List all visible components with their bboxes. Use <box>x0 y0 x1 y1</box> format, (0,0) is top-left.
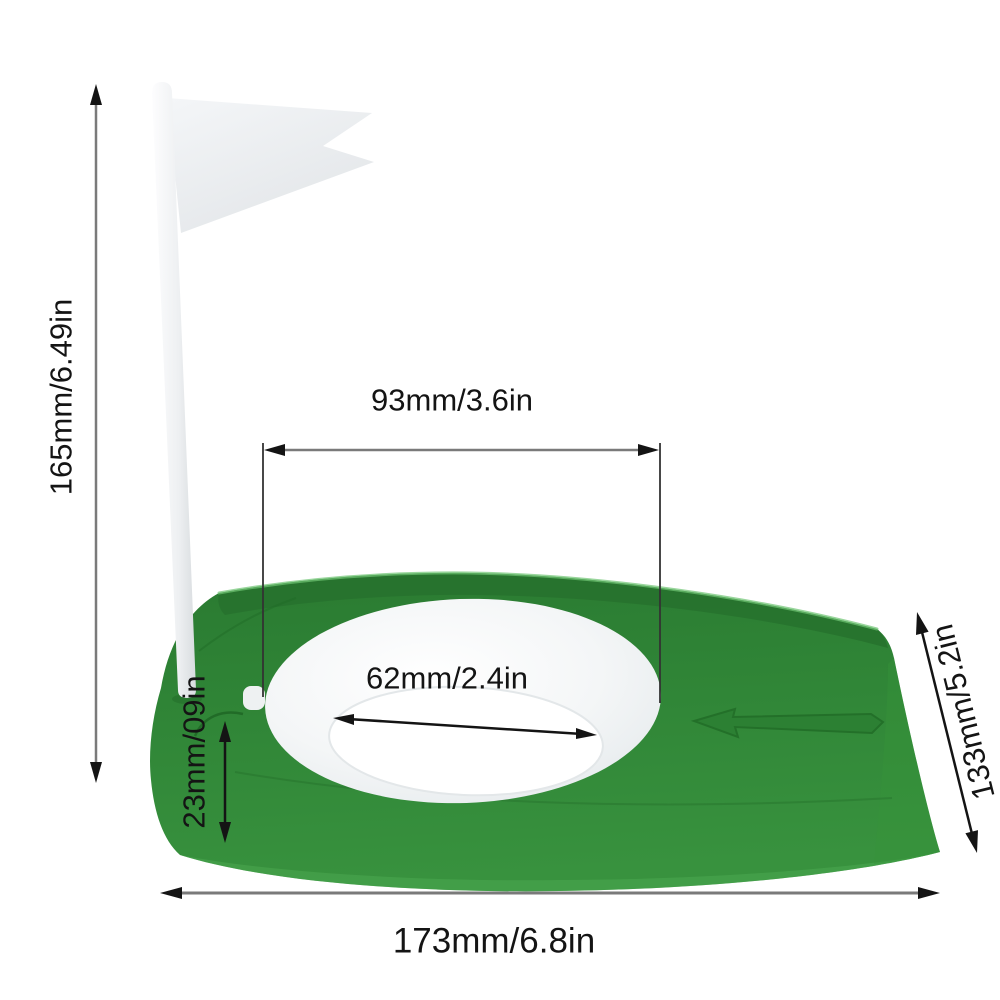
dim-label: 93mm/3.6in <box>371 383 533 418</box>
dim-label: 133mm/5.2in <box>924 621 1000 803</box>
arrowhead-left-icon <box>264 444 285 456</box>
arrowhead-down-icon <box>90 762 102 783</box>
dim-label: 62mm/2.4in <box>366 661 528 696</box>
dim-base-length: 173mm/6.8in <box>160 887 940 961</box>
dim-flag-pole-height: 165mm/6.49in <box>44 84 103 783</box>
arrowhead-right-icon <box>638 444 659 456</box>
arrowhead-left-icon <box>160 887 182 899</box>
flag <box>167 98 374 233</box>
arrowhead-up-icon <box>90 84 102 105</box>
ring-tab <box>243 686 265 710</box>
dim-label: 165mm/6.49in <box>44 299 79 495</box>
arrowhead-right-icon <box>918 887 940 899</box>
dim-label: 173mm/6.8in <box>393 922 595 961</box>
product-dimension-diagram: 165mm/6.49in 93mm/3.6in 62mm/2.4in 23mm/… <box>0 0 1000 1000</box>
arrowhead-down-icon <box>965 830 978 853</box>
dim-label: 23mm/09in <box>177 675 212 828</box>
putting-cup-diagram-canvas: 165mm/6.49in 93mm/3.6in 62mm/2.4in 23mm/… <box>0 0 1000 1000</box>
